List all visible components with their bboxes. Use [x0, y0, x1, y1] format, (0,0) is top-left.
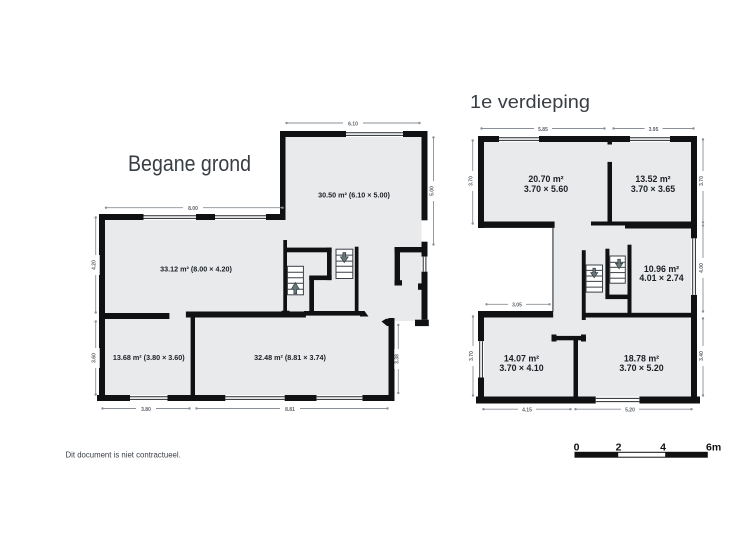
- svg-text:3.70 × 4.10: 3.70 × 4.10: [499, 363, 543, 373]
- svg-text:3.95: 3.95: [649, 127, 659, 133]
- svg-text:0: 0: [574, 442, 580, 454]
- svg-text:18.78 m²: 18.78 m²: [624, 354, 659, 364]
- svg-text:32.48 m² (8.81 × 3.74): 32.48 m² (8.81 × 3.74): [254, 353, 326, 362]
- svg-text:3.70 × 5.60: 3.70 × 5.60: [524, 184, 568, 194]
- svg-text:4.01 × 2.74: 4.01 × 2.74: [639, 273, 683, 283]
- svg-text:3.70 × 3.65: 3.70 × 3.65: [631, 184, 675, 194]
- svg-text:33.12 m² (8.00 × 4.20): 33.12 m² (8.00 × 4.20): [160, 265, 232, 274]
- svg-text:8.00: 8.00: [188, 206, 198, 212]
- svg-text:3.70: 3.70: [469, 351, 475, 361]
- svg-text:3.60: 3.60: [92, 353, 98, 363]
- svg-text:4: 4: [660, 442, 666, 454]
- svg-text:14.07 m²: 14.07 m²: [504, 354, 539, 364]
- svg-text:3.80: 3.80: [141, 407, 151, 413]
- svg-text:Begane grond: Begane grond: [128, 151, 251, 176]
- svg-text:8.81: 8.81: [285, 407, 295, 413]
- svg-text:4.00: 4.00: [699, 263, 705, 273]
- svg-text:3.70 × 5.20: 3.70 × 5.20: [619, 363, 663, 373]
- svg-text:Dit document is niet contractu: Dit document is niet contractueel.: [66, 451, 181, 460]
- svg-text:4.20: 4.20: [92, 260, 98, 270]
- svg-text:6.10: 6.10: [348, 121, 358, 127]
- svg-text:3.70: 3.70: [699, 176, 705, 186]
- svg-text:13.68 m² (3.80 × 3.60): 13.68 m² (3.80 × 3.60): [113, 353, 185, 362]
- svg-text:5.85: 5.85: [538, 127, 548, 133]
- svg-text:2: 2: [616, 442, 622, 454]
- svg-text:30.50 m² (6.10 × 5.00): 30.50 m² (6.10 × 5.00): [318, 191, 390, 200]
- svg-text:4.15: 4.15: [522, 408, 532, 414]
- svg-text:5.20: 5.20: [625, 408, 635, 414]
- svg-text:3.38: 3.38: [394, 354, 400, 364]
- svg-text:6m: 6m: [706, 442, 721, 454]
- svg-text:1e verdieping: 1e verdieping: [470, 91, 590, 112]
- svg-text:20.70 m²: 20.70 m²: [528, 174, 563, 184]
- svg-text:3.70: 3.70: [469, 176, 475, 186]
- svg-text:5.00: 5.00: [430, 186, 436, 196]
- svg-text:13.52 m²: 13.52 m²: [635, 174, 670, 184]
- svg-text:3.40: 3.40: [699, 351, 705, 361]
- svg-text:3.05: 3.05: [512, 303, 522, 309]
